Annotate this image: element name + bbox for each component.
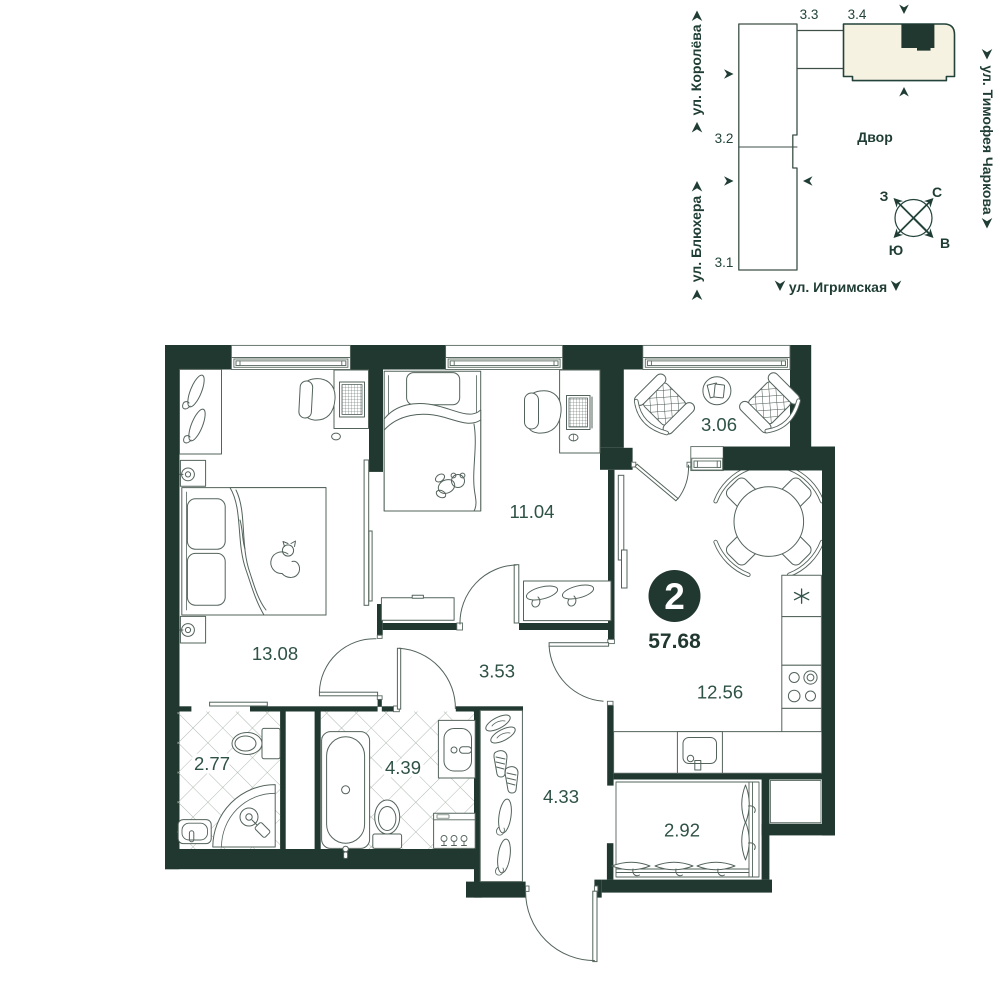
svg-text:ул. Тимофея Чаркова: ул. Тимофея Чаркова — [980, 65, 996, 215]
svg-text:12.56: 12.56 — [697, 682, 743, 703]
svg-text:3.4: 3.4 — [848, 7, 867, 22]
svg-text:Ю: Ю — [889, 242, 903, 258]
svg-text:11.04: 11.04 — [510, 501, 555, 522]
svg-text:С: С — [932, 184, 942, 200]
svg-text:57.68: 57.68 — [648, 630, 701, 653]
svg-text:З: З — [880, 188, 889, 204]
svg-text:2: 2 — [664, 576, 685, 617]
svg-text:ул. Королёва: ул. Королёва — [688, 24, 704, 115]
svg-text:2.92: 2.92 — [664, 820, 700, 841]
svg-text:3.3: 3.3 — [800, 7, 819, 22]
svg-text:3.53: 3.53 — [479, 661, 515, 682]
svg-text:4.39: 4.39 — [385, 757, 421, 778]
svg-text:ул. Блюхера: ул. Блюхера — [688, 196, 704, 283]
svg-text:3.1: 3.1 — [715, 255, 734, 270]
svg-text:4.33: 4.33 — [543, 786, 579, 807]
svg-text:2.77: 2.77 — [194, 753, 230, 774]
svg-text:ул. Игримская: ул. Игримская — [789, 279, 887, 295]
svg-text:3.06: 3.06 — [701, 414, 737, 435]
svg-text:13.08: 13.08 — [252, 643, 298, 664]
svg-text:Двор: Двор — [857, 129, 893, 145]
svg-text:В: В — [940, 235, 950, 251]
svg-text:3.2: 3.2 — [715, 131, 734, 146]
